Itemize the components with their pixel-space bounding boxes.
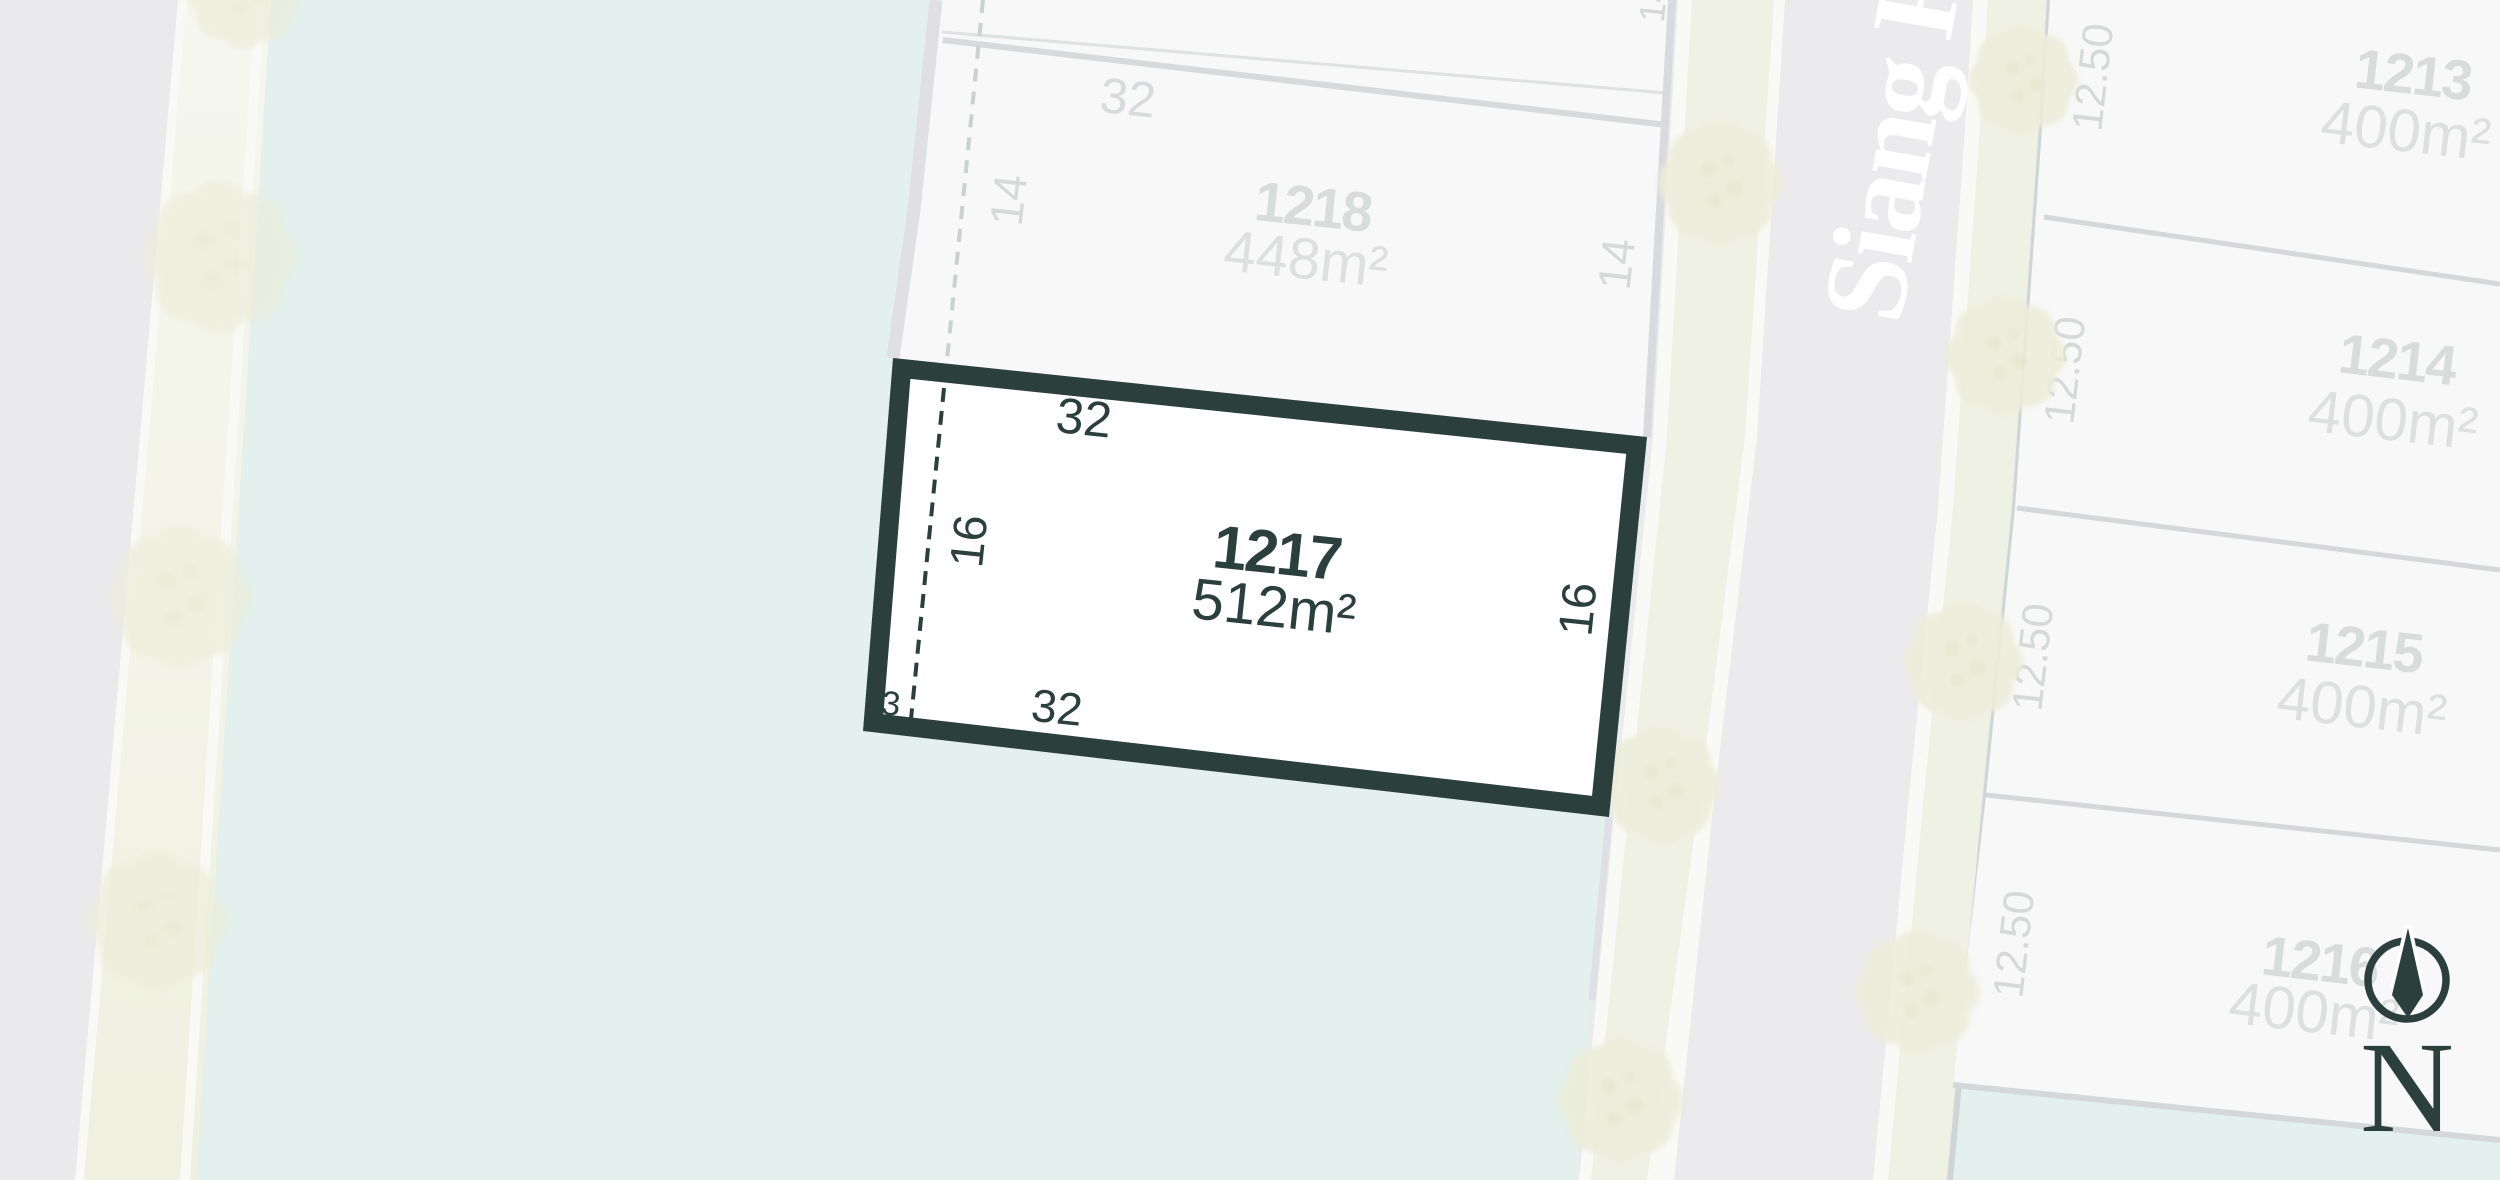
svg-text:32: 32 (1097, 67, 1158, 129)
svg-text:16: 16 (1549, 580, 1607, 639)
svg-text:32: 32 (1053, 387, 1114, 449)
svg-text:16: 16 (939, 512, 997, 570)
svg-text:14: 14 (980, 172, 1037, 228)
svg-text:14: 14 (1588, 236, 1645, 292)
svg-text:14: 14 (1631, 0, 1676, 24)
svg-text:3: 3 (879, 684, 902, 724)
svg-text:32: 32 (1029, 679, 1085, 736)
svg-text:N: N (2360, 1016, 2454, 1160)
